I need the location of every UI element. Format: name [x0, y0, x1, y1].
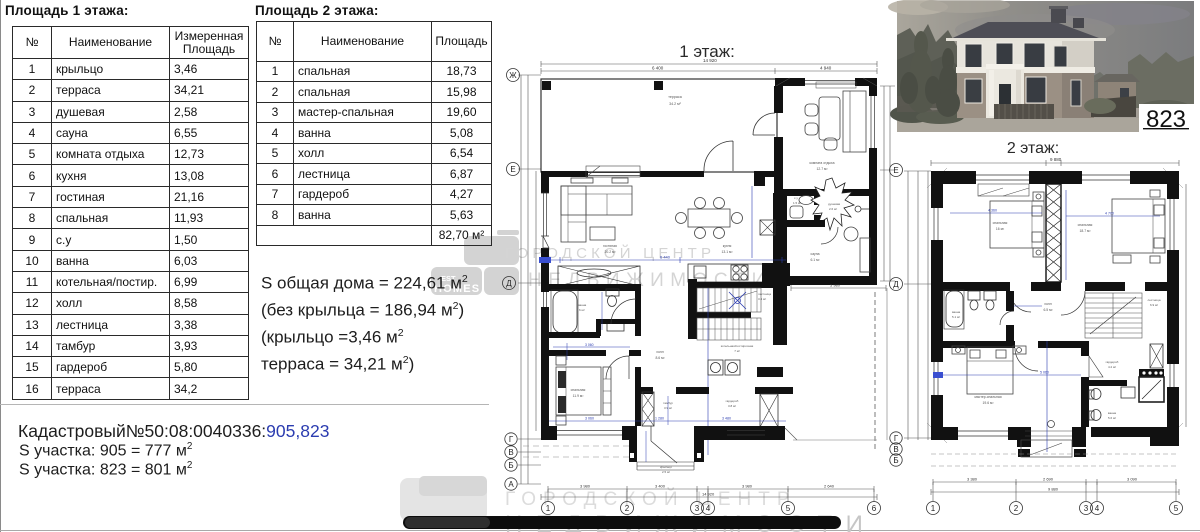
svg-text:6: 6 — [872, 504, 877, 513]
svg-text:3 980: 3 980 — [742, 484, 753, 489]
svg-text:3: 3 — [1084, 504, 1089, 513]
svg-text:13.1 м²: 13.1 м² — [721, 250, 733, 254]
svg-text:3 060: 3 060 — [585, 343, 594, 347]
svg-text:сауна: сауна — [811, 252, 820, 256]
svg-text:Б: Б — [508, 461, 513, 470]
svg-text:1: 1 — [931, 504, 936, 513]
svg-text:14 920: 14 920 — [703, 58, 717, 63]
svg-text:2 690: 2 690 — [1043, 477, 1054, 482]
svg-text:лестница: лестница — [758, 292, 771, 296]
svg-text:5.1 м²: 5.1 м² — [952, 315, 960, 319]
svg-text:9 880: 9 880 — [1048, 487, 1059, 492]
svg-text:Д: Д — [893, 280, 899, 289]
svg-text:Г: Г — [894, 434, 899, 443]
svg-text:гардероб: гардероб — [726, 399, 739, 403]
svg-text:Г: Г — [509, 435, 514, 444]
svg-text:гардероб: гардероб — [1106, 360, 1119, 364]
svg-text:ванна: ванна — [1108, 411, 1117, 415]
svg-text:5: 5 — [786, 504, 791, 513]
svg-text:с.у: с.у — [794, 196, 798, 200]
svg-text:5 060: 5 060 — [1040, 371, 1049, 375]
svg-text:холл: холл — [1044, 302, 1051, 306]
svg-text:ванна: ванна — [578, 303, 587, 307]
svg-text:В: В — [893, 445, 898, 454]
svg-text:4: 4 — [1095, 504, 1100, 513]
svg-text:холл: холл — [656, 350, 663, 354]
svg-text:А: А — [508, 480, 514, 489]
svg-text:В: В — [508, 448, 513, 457]
svg-text:мастер-спальная: мастер-спальная — [974, 395, 1001, 399]
svg-text:2: 2 — [625, 504, 630, 513]
svg-text:3.8 м²: 3.8 м² — [728, 404, 736, 408]
svg-text:котельная/постирочная: котельная/постирочная — [721, 344, 754, 348]
svg-text:5 980: 5 980 — [830, 283, 841, 288]
svg-text:6.1 м²: 6.1 м² — [810, 258, 820, 262]
svg-text:34.2 м²: 34.2 м² — [669, 102, 681, 106]
svg-text:11.9 м²: 11.9 м² — [573, 394, 585, 398]
svg-text:5: 5 — [1174, 504, 1179, 513]
svg-text:18.7 м²: 18.7 м² — [1079, 229, 1091, 233]
svg-text:Е: Е — [893, 166, 898, 175]
svg-text:3 060: 3 060 — [585, 417, 594, 421]
svg-text:5.6 м²: 5.6 м² — [1108, 416, 1116, 420]
svg-text:4 360: 4 360 — [988, 209, 997, 213]
svg-text:6 440: 6 440 — [660, 255, 671, 260]
svg-text:19.6 м²: 19.6 м² — [982, 401, 994, 405]
svg-text:3 400: 3 400 — [655, 484, 666, 489]
svg-text:8.6 м²: 8.6 м² — [655, 356, 665, 360]
svg-text:14 920: 14 920 — [702, 492, 715, 497]
svg-text:1: 1 — [546, 504, 551, 513]
svg-text:2 этаж:: 2 этаж: — [1007, 140, 1059, 157]
svg-text:1.5 м²: 1.5 м² — [793, 201, 801, 205]
svg-text:6 400: 6 400 — [652, 66, 664, 71]
svg-text:16 м²: 16 м² — [996, 227, 1005, 231]
svg-text:душевая: душевая — [828, 202, 841, 206]
svg-text:Д: Д — [506, 279, 512, 288]
svg-text:3 380: 3 380 — [967, 477, 978, 482]
svg-text:4.2 м²: 4.2 м² — [1108, 365, 1116, 369]
svg-text:2 640: 2 640 — [824, 484, 835, 489]
svg-text:7 м²: 7 м² — [734, 349, 740, 353]
svg-text:гостиная: гостиная — [603, 244, 617, 248]
svg-text:3 090: 3 090 — [1127, 477, 1138, 482]
svg-text:кухня: кухня — [723, 244, 732, 248]
svg-text:9 880: 9 880 — [1050, 157, 1062, 162]
svg-text:Б: Б — [893, 456, 898, 465]
svg-text:крыльцо: крыльцо — [660, 465, 672, 469]
svg-text:3.4 м²: 3.4 м² — [758, 297, 766, 301]
svg-text:2: 2 — [1014, 504, 1019, 513]
svg-text:терраса: терраса — [668, 95, 681, 99]
svg-text:4 940: 4 940 — [820, 66, 832, 71]
svg-text:20.2 м²: 20.2 м² — [604, 250, 616, 254]
svg-text:2.6 м²: 2.6 м² — [829, 207, 837, 211]
svg-text:6 м²: 6 м² — [579, 308, 585, 312]
svg-text:12.7 м²: 12.7 м² — [816, 167, 828, 171]
svg-text:3 980: 3 980 — [580, 484, 591, 489]
svg-text:спальная: спальная — [993, 221, 1008, 225]
svg-text:4 700: 4 700 — [1105, 212, 1114, 216]
svg-text:3 480: 3 480 — [722, 417, 731, 421]
svg-text:спальная: спальная — [1078, 223, 1093, 227]
svg-text:лестница: лестница — [1147, 298, 1160, 302]
svg-text:Е: Е — [510, 165, 515, 174]
svg-text:Ж: Ж — [509, 71, 517, 80]
svg-text:ванна: ванна — [952, 310, 961, 314]
svg-text:комната отдыха: комната отдыха — [810, 161, 835, 165]
svg-text:2.5 м²: 2.5 м² — [662, 470, 670, 474]
svg-text:спальная: спальная — [571, 388, 586, 392]
svg-text:3: 3 — [695, 504, 700, 513]
svg-text:4: 4 — [706, 504, 711, 513]
svg-text:1 280: 1 280 — [655, 417, 664, 421]
svg-text:6.9 м²: 6.9 м² — [1150, 303, 1158, 307]
svg-text:6.5 м²: 6.5 м² — [1043, 308, 1053, 312]
